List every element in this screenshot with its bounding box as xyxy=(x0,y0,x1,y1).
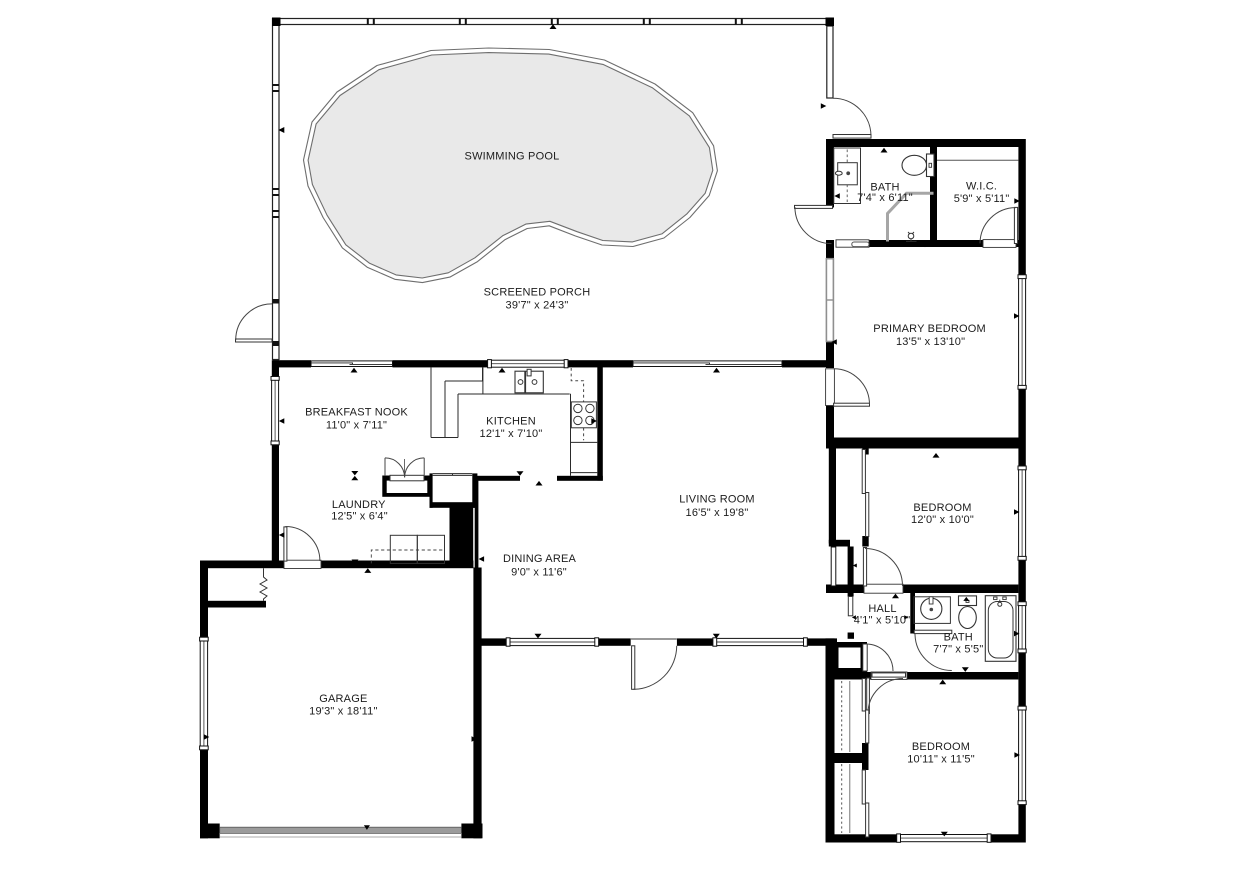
svg-text:DINING AREA: DINING AREA xyxy=(503,553,577,565)
svg-text:SWIMMING POOL: SWIMMING POOL xyxy=(465,151,560,163)
svg-text:9'0" x 11'6": 9'0" x 11'6" xyxy=(511,566,567,578)
svg-text:HALL: HALL xyxy=(868,603,896,615)
svg-text:16'5" x 19'8": 16'5" x 19'8" xyxy=(686,507,749,519)
svg-text:BATH: BATH xyxy=(944,632,973,644)
svg-text:5'9" x 5'11": 5'9" x 5'11" xyxy=(954,193,1010,205)
svg-text:GARAGE: GARAGE xyxy=(319,693,367,705)
svg-text:LAUNDRY: LAUNDRY xyxy=(332,499,386,511)
svg-text:13'5" x 13'10": 13'5" x 13'10" xyxy=(896,336,965,348)
svg-text:12'1" x 7'10": 12'1" x 7'10" xyxy=(480,428,543,440)
svg-text:7'7" x 5'5": 7'7" x 5'5" xyxy=(933,644,983,656)
svg-text:BEDROOM: BEDROOM xyxy=(913,502,971,514)
svg-text:11'0" x 7'11": 11'0" x 7'11" xyxy=(326,420,387,432)
svg-text:39'7" x 24'3": 39'7" x 24'3" xyxy=(506,300,569,312)
svg-text:4'1" x 5'10": 4'1" x 5'10" xyxy=(854,615,911,627)
svg-text:PRIMARY BEDROOM: PRIMARY BEDROOM xyxy=(873,323,986,335)
svg-text:SCREENED PORCH: SCREENED PORCH xyxy=(484,286,591,298)
svg-text:7'4" x 6'11": 7'4" x 6'11" xyxy=(857,192,913,204)
svg-text:19'3" x 18'11": 19'3" x 18'11" xyxy=(309,705,377,717)
svg-text:LIVING ROOM: LIVING ROOM xyxy=(679,493,755,505)
svg-text:W.I.C.: W.I.C. xyxy=(966,180,997,192)
svg-text:10'11" x 11'5": 10'11" x 11'5" xyxy=(907,753,975,765)
svg-text:12'5" x 6'4": 12'5" x 6'4" xyxy=(331,510,388,522)
svg-text:BREAKFAST NOOK: BREAKFAST NOOK xyxy=(305,406,408,418)
svg-text:12'0" x 10'0": 12'0" x 10'0" xyxy=(911,514,974,526)
svg-text:KITCHEN: KITCHEN xyxy=(486,415,536,427)
svg-text:BEDROOM: BEDROOM xyxy=(912,741,970,753)
